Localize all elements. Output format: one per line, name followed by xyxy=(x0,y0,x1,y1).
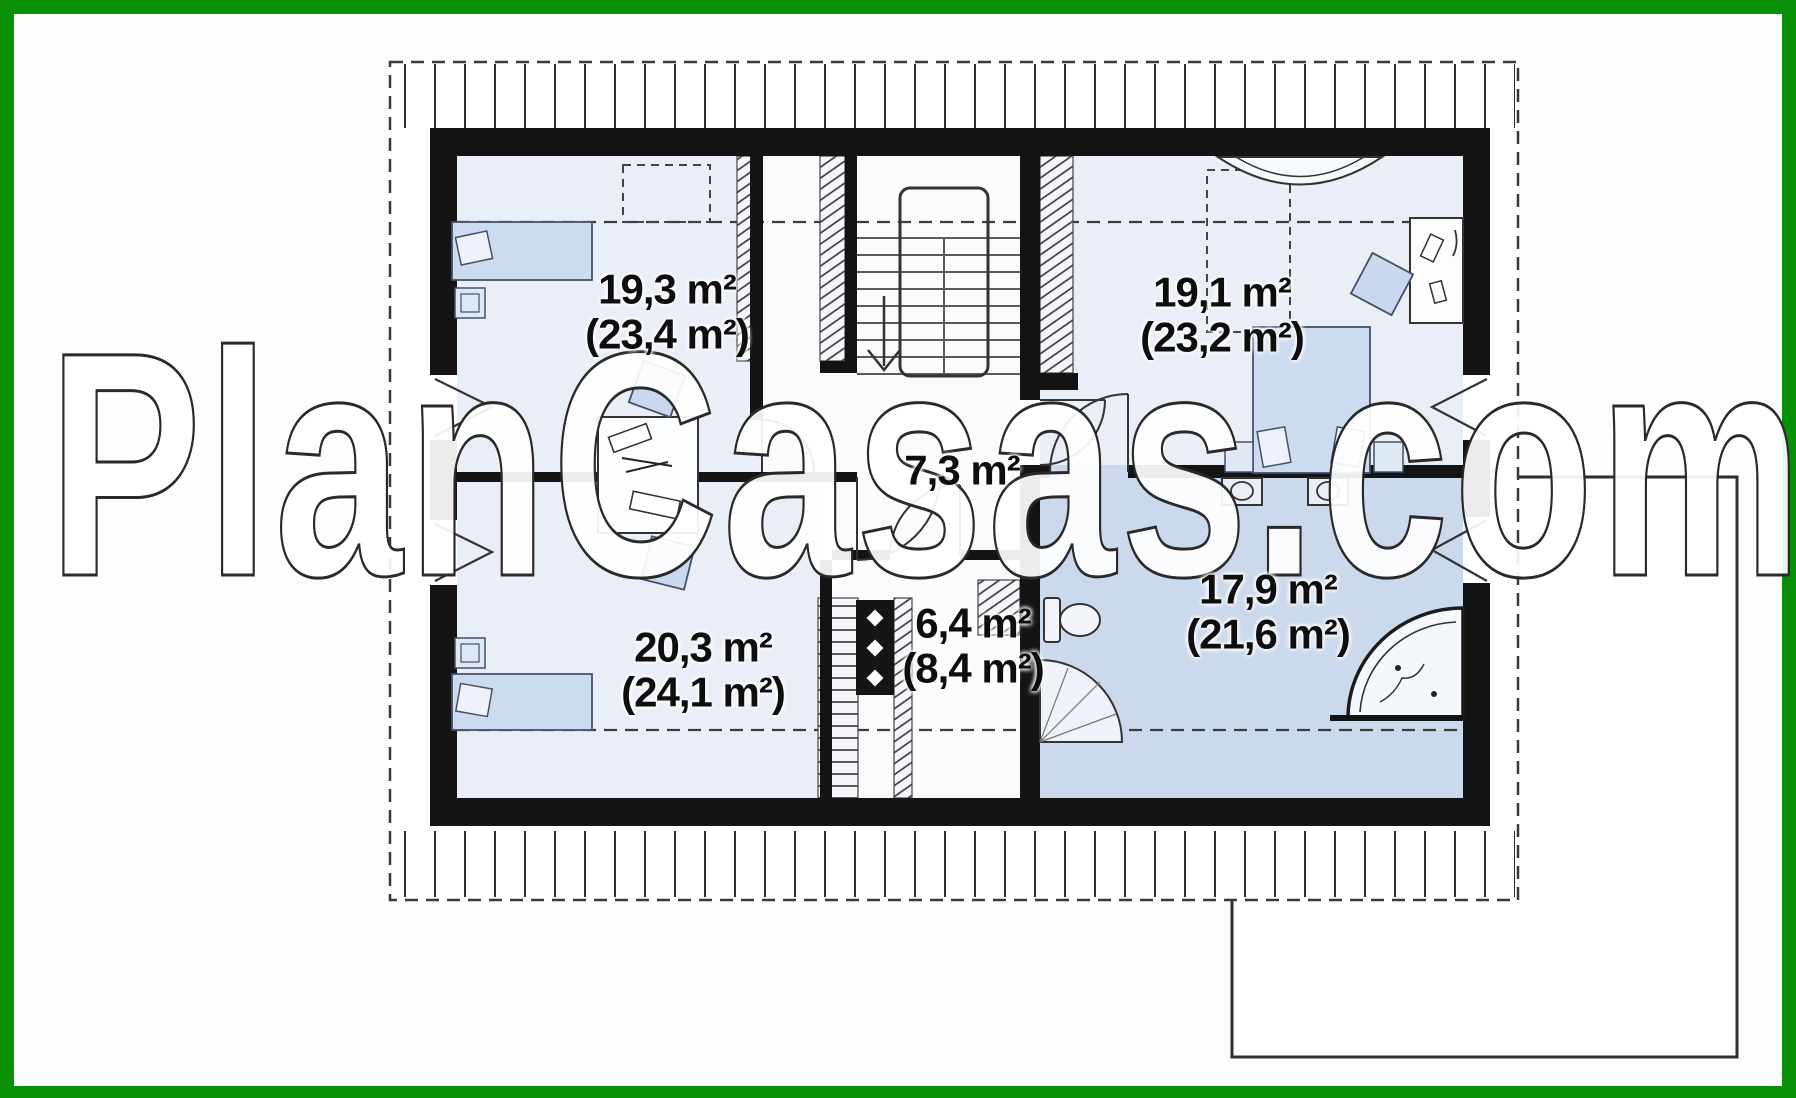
room-label-top-left: 19,3 m² (23,4 m²) xyxy=(585,267,749,356)
room-area: 17,9 m² xyxy=(1199,565,1337,612)
room-area-gross: (8,4 m²) xyxy=(902,646,1043,691)
room-label-top-right: 19,1 m² (23,2 m²) xyxy=(1140,270,1304,359)
room-area: 20,3 m² xyxy=(634,623,772,670)
room-area-gross: (24,1 m²) xyxy=(621,670,785,715)
room-area-gross: (23,4 m²) xyxy=(585,312,749,357)
room-area: 7,3 m² xyxy=(904,447,1019,494)
room-area-gross: (21,6 m²) xyxy=(1186,612,1350,657)
floor-plan: 19,3 m² (23,4 m²) 19,1 m² (23,2 m²) 7,3 … xyxy=(0,0,1796,1098)
eave-hatch-top xyxy=(398,64,1515,128)
eave-hatch-bottom xyxy=(398,831,1515,897)
room-label-bathroom: 17,9 m² (21,6 m²) xyxy=(1186,567,1350,656)
room-area: 19,3 m² xyxy=(598,265,736,312)
room-area: 6,4 m² xyxy=(915,599,1030,646)
room-label-bottom-left: 20,3 m² (24,1 m²) xyxy=(621,625,785,714)
room-label-hall: 7,3 m² xyxy=(904,449,1019,494)
room-area-gross: (23,2 m²) xyxy=(1140,315,1304,360)
room-area: 19,1 m² xyxy=(1153,268,1291,315)
screenshot-frame: 19,3 m² (23,4 m²) 19,1 m² (23,2 m²) 7,3 … xyxy=(0,0,1796,1098)
room-label-wardrobe: 6,4 m² (8,4 m²) xyxy=(902,601,1043,690)
pillow xyxy=(456,683,492,716)
pillow xyxy=(455,231,492,265)
